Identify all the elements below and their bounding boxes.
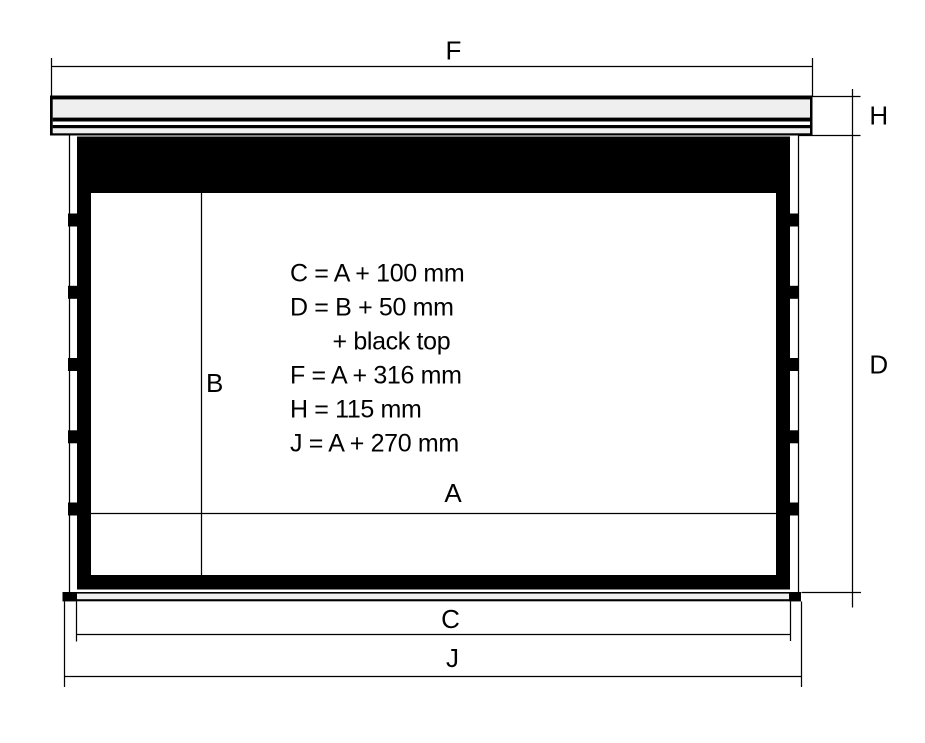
svg-text:J = A + 270 mm: J = A + 270 mm [290, 430, 459, 458]
svg-text:D: D [869, 350, 888, 380]
svg-text:J: J [446, 643, 459, 673]
svg-text:H: H [869, 101, 888, 131]
svg-text:+ black top: + black top [333, 328, 451, 356]
svg-text:B: B [206, 368, 223, 398]
svg-text:C: C [441, 604, 460, 634]
svg-text:A: A [444, 478, 462, 508]
svg-text:F: F [446, 36, 462, 66]
svg-text:C = A + 100 mm: C = A + 100 mm [290, 260, 464, 288]
svg-text:F = A + 316 mm: F = A + 316 mm [290, 362, 462, 390]
svg-text:D = B + 50 mm: D = B + 50 mm [290, 294, 454, 322]
svg-text:H = 115 mm: H = 115 mm [290, 396, 422, 424]
